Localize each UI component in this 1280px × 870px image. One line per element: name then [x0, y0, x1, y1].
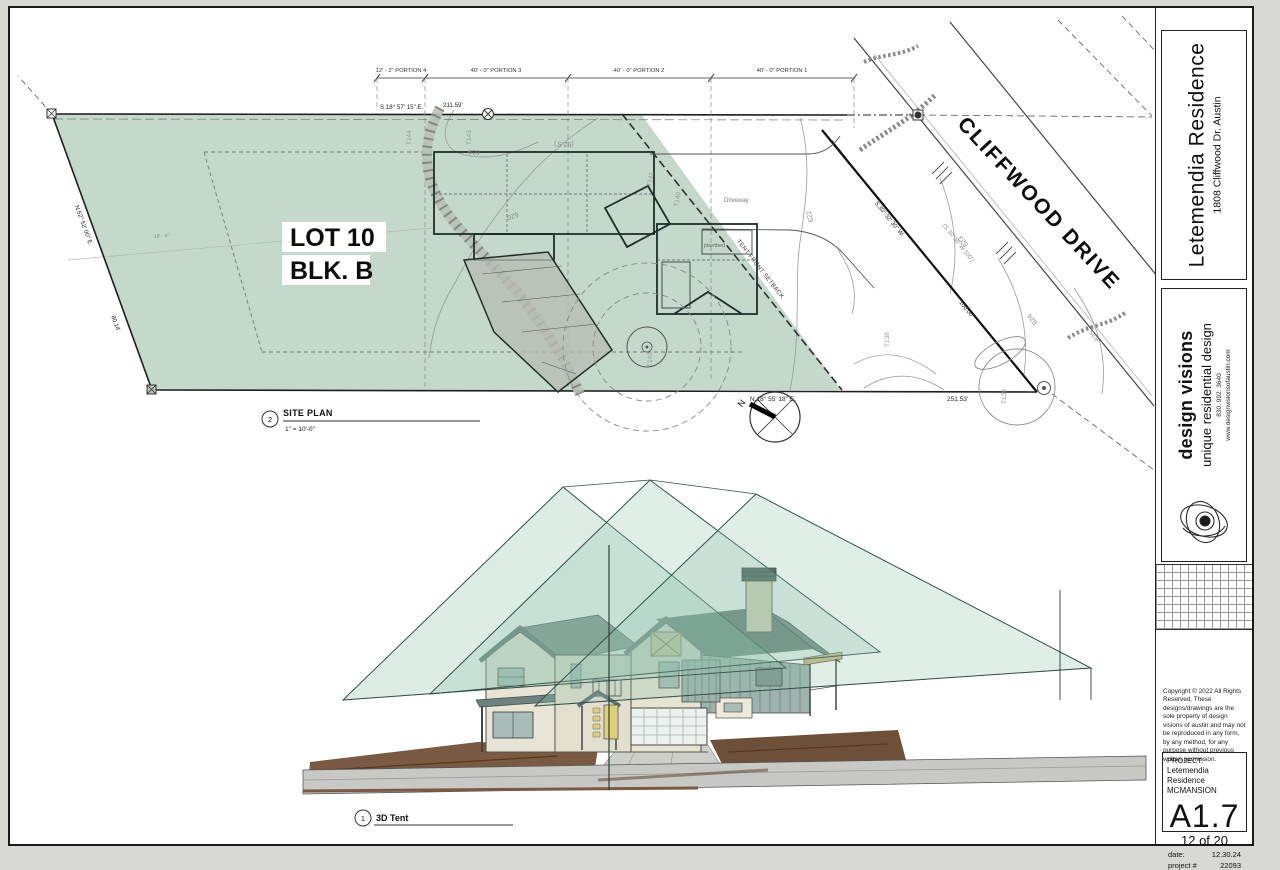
view3d-title: 3D Tent [376, 813, 408, 823]
interior-dim-label: 16' - 6" [154, 233, 170, 240]
firm-website: www.designvisionsofaustin.com [1225, 349, 1232, 440]
bearing-west-length: 80.14' [109, 315, 120, 332]
firm-logo-icon [1177, 494, 1231, 548]
portion-4-label: 12' - 2" PORTION 4 [376, 68, 428, 74]
tree-tag-t138: T138 [884, 332, 891, 347]
ground-3d [303, 730, 1146, 794]
view-3d-drawing: 1 3D Tent [278, 468, 1164, 848]
grid-pattern [1156, 564, 1252, 630]
plantbed-label: plantbed [704, 243, 725, 249]
site-plan-scale: 1" = 10'-0" [285, 426, 316, 433]
bearing-bottom-length: 251.53' [947, 396, 968, 403]
firm-name: design visions [1176, 330, 1197, 459]
project-name: Letemendia Residence [1185, 43, 1209, 268]
lot-label-line2: BLK. B [290, 257, 373, 285]
project-line1: Letemendia Residence [1167, 766, 1242, 786]
site-plan-drawing: 12' - 2" PORTION 4 40' - 0" PORTION 3 40… [10, 8, 1164, 476]
bearing-bottom: N.18° 55' 18" E. [750, 395, 796, 403]
drawing-sheet: 12' - 2" PORTION 4 40' - 0" PORTION 3 40… [8, 6, 1254, 846]
front-door [604, 705, 618, 739]
bearing-top: S.18° 57' 15".E. [380, 104, 424, 111]
portion-1-label: 40' - 0" PORTION 1 [757, 68, 808, 74]
site-plan-title: SITE PLAN [283, 408, 333, 418]
firm-logo [1177, 494, 1231, 553]
tree-tag-t142: T142 [647, 352, 654, 367]
firm-phone: 830. 992. 3640 [1216, 373, 1223, 416]
title-block: Letemendia Residence 1808 Cliffwood Dr. … [1155, 8, 1252, 844]
callout-number: 2 [268, 415, 272, 424]
driveway-label: Driveway [724, 198, 749, 204]
tree-tag-t143: T143 [466, 130, 473, 145]
callout-number: 1 [361, 814, 365, 823]
bearing-east: S.30° 32' 30" W. [873, 201, 905, 239]
tree-tag-t144: T144 [406, 130, 413, 145]
project-number-value: 22093 [1220, 861, 1241, 870]
contour-label-625: 625 [1088, 328, 1101, 342]
project-label: PROJECT: [1167, 756, 1242, 765]
contour-label-619: 619 [468, 147, 480, 155]
project-line2: MCMANSION [1167, 786, 1242, 796]
firm-box: design visions unique residential design… [1161, 288, 1247, 562]
portion-3-label: 40' - 0" PORTION 3 [471, 68, 522, 74]
contour-label-624: 624 [1026, 312, 1039, 326]
project-name-box: Letemendia Residence 1808 Cliffwood Dr. … [1161, 30, 1247, 280]
sheet-count: 12 of 20 [1167, 833, 1242, 848]
sheet-info-box: PROJECT: Letemendia Residence MCMANSION … [1162, 752, 1247, 832]
paren-dim-label: (92.5') [554, 140, 574, 148]
project-number-label: project # [1168, 861, 1197, 870]
lot-label-line1: LOT 10 [290, 224, 375, 252]
north-label: N [736, 398, 748, 409]
contour-label-622: 622 [806, 210, 816, 223]
bearing-east-length: 100.00' [957, 300, 974, 319]
firm-tagline: unique residential design [1199, 323, 1214, 467]
view3d-callout: 1 3D Tent [355, 810, 513, 826]
portion-2-label: 40' - 0" PORTION 2 [614, 68, 665, 74]
sheet-number: A1.7 [1167, 798, 1242, 835]
lot-shaded-area [52, 114, 841, 390]
site-plan-callout: 2 SITE PLAN 1" = 10'-0" [262, 408, 480, 433]
bearing-top-length: 211.59' [443, 102, 463, 109]
street-name-label: CLIFFWOOD DRIVE [953, 113, 1125, 295]
rock-wall-hatch [860, 94, 936, 150]
project-address: 1808 Cliffwood Dr. Austin [1211, 96, 1223, 213]
tree-tag-t139: T139 [1001, 389, 1008, 404]
